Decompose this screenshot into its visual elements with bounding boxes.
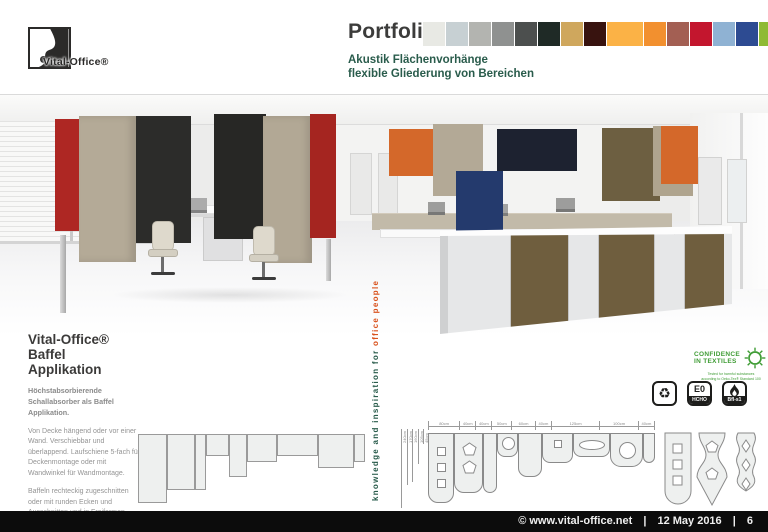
subtitle-line-1: Akustik Flächenvorhänge xyxy=(348,54,488,66)
square-cutout xyxy=(437,447,446,456)
baffle-taupe xyxy=(79,116,136,262)
color-swatch xyxy=(667,22,689,46)
e0-label: E0 xyxy=(689,383,710,395)
product-heading-line1: Vital-Office® xyxy=(28,332,109,347)
color-swatch xyxy=(492,22,514,46)
baffle-black xyxy=(214,114,266,239)
width-dimension-segment: 50cm xyxy=(491,421,511,430)
footer-page-number: 6 xyxy=(743,515,757,527)
brand-name: Vital-Office® xyxy=(43,56,109,68)
baffle-outline xyxy=(167,434,195,490)
width-dimension-segment: 100cm xyxy=(599,421,638,430)
baffle-shape xyxy=(643,433,655,463)
color-swatch xyxy=(469,22,491,46)
office-chair-base xyxy=(151,272,175,275)
width-dimension-segment: 40cm xyxy=(535,421,551,430)
color-swatch xyxy=(607,22,643,46)
baffle-shape xyxy=(518,433,542,477)
monitor xyxy=(428,202,445,215)
product-lead: Höchstabsorbierende Schallabsorber als B… xyxy=(28,386,142,418)
subtitle-line-2: flexible Gliederung von Bereichen xyxy=(348,68,534,80)
office-chair-seat xyxy=(249,254,279,262)
width-dimension-segment: 60cm xyxy=(511,421,535,430)
recycling-badge: ♻ xyxy=(652,381,677,406)
support-pole xyxy=(60,235,66,313)
circle-cutout xyxy=(619,442,636,459)
door-right xyxy=(727,159,747,223)
ellipse-cutout xyxy=(579,440,605,450)
oeko-sun-icon xyxy=(743,346,767,370)
color-swatch xyxy=(446,22,468,46)
portfolio-page: Vital-Office® Portfolio Akustik Flächenv… xyxy=(0,0,768,532)
vertical-tagline: knowledge and inspiration for office peo… xyxy=(371,265,385,501)
color-swatch xyxy=(561,22,583,46)
emission-badge: E0 HCHO xyxy=(687,381,712,406)
privacy-screen-row xyxy=(372,213,672,230)
baffle-outline xyxy=(229,434,247,477)
door-right xyxy=(698,157,722,225)
oeko-tex-label: CONFIDENCE IN TEXTILES Tested for harmfu… xyxy=(694,346,768,381)
office-chair-base xyxy=(252,277,276,280)
baffle-shape xyxy=(454,433,483,493)
baffle-outline xyxy=(195,434,206,490)
footer-bar: © www.vital-office.net | 12 May 2016 | 6 xyxy=(0,511,768,532)
product-info-block: Vital-Office® Baffel Applikation Höchsta… xyxy=(28,332,142,529)
oeko-title-line2: IN TEXTILES xyxy=(694,358,740,365)
baffle-shape xyxy=(428,433,454,503)
square-cutout xyxy=(437,463,446,472)
baffle-outline xyxy=(277,434,318,456)
color-swatch xyxy=(538,22,560,46)
color-swatch xyxy=(584,22,606,46)
tagline-accent: office people xyxy=(371,280,380,346)
product-paragraph-1: Von Decke hängend oder vor einer Wand. V… xyxy=(28,427,142,480)
color-swatch xyxy=(736,22,758,46)
circle-cutout xyxy=(502,437,515,450)
fire-class-label: Bfl-s1 xyxy=(724,396,745,404)
baffle-red xyxy=(310,114,336,238)
tagline-main: knowledge and inspiration for xyxy=(371,346,380,501)
color-swatch xyxy=(515,22,537,46)
office-chair-post xyxy=(262,262,265,277)
width-dimension-segment: 125cm xyxy=(551,421,599,430)
width-dimension-segment: 40cm xyxy=(638,421,655,430)
fire-rating-badge: Bfl-s1 xyxy=(722,381,747,406)
footer-separator: | xyxy=(639,515,650,527)
freeform-baffle-shapes xyxy=(662,432,762,508)
office-chair xyxy=(253,226,275,256)
pentagon-cutout xyxy=(463,443,476,455)
baffle-shape xyxy=(610,433,643,467)
baffle-navy xyxy=(456,171,503,236)
product-heading-line2: Baffel Applikation xyxy=(28,347,102,377)
baffle-dimension-drawing: 80cm40cm40cm50cm60cm40cm125cm100cm40cm 2… xyxy=(400,415,768,515)
color-swatch xyxy=(713,22,735,46)
office-chair-seat xyxy=(148,249,178,257)
fabric-color-strip xyxy=(423,22,768,46)
color-swatch xyxy=(423,22,445,46)
baffle-shape xyxy=(573,433,610,457)
baffle-outline xyxy=(247,434,277,462)
color-swatch xyxy=(690,22,712,46)
support-pole xyxy=(326,239,331,281)
width-dimension-segment: 40cm xyxy=(475,421,491,430)
footer-date: 12 May 2016 xyxy=(653,515,725,527)
color-swatch xyxy=(644,22,666,46)
baffle-overlap-diagram xyxy=(138,434,368,506)
product-heading: Vital-Office® Baffel Applikation xyxy=(28,332,142,377)
baffle-outline xyxy=(354,434,365,462)
monitor xyxy=(556,198,575,212)
footer-copyright-url[interactable]: © www.vital-office.net xyxy=(514,515,636,527)
floor-shadow xyxy=(110,287,350,303)
height-dimension-lines: 240cm170cm160cm105cm45cm xyxy=(401,429,429,513)
office-chair xyxy=(152,221,174,251)
square-cutout xyxy=(437,479,446,488)
baffle-shape xyxy=(497,433,518,457)
color-swatch xyxy=(759,22,768,46)
oeko-title-line1: CONFIDENCE xyxy=(694,351,740,358)
baffle-olive xyxy=(602,128,660,201)
pentagon-cutout xyxy=(463,461,476,473)
recycle-icon: ♻ xyxy=(654,383,675,404)
width-dimension-segment: 40cm xyxy=(459,421,475,430)
width-dimension-segment: 80cm xyxy=(428,421,459,430)
door-center xyxy=(350,153,372,215)
square-cutout xyxy=(554,440,562,448)
baffle-shape xyxy=(483,433,497,493)
baffle-outline xyxy=(318,434,354,468)
baffle-orange xyxy=(661,126,698,184)
hcho-label: HCHO xyxy=(689,396,710,404)
baffle-shape xyxy=(542,433,573,463)
baffle-red xyxy=(55,119,82,231)
baffle-outline xyxy=(206,434,229,456)
baffle-dark-navy xyxy=(497,129,577,171)
width-dimension-line: 80cm40cm40cm50cm60cm40cm125cm100cm40cm xyxy=(428,421,655,431)
footer-separator: | xyxy=(729,515,740,527)
office-chair-post xyxy=(161,257,164,272)
baffle-outline xyxy=(138,434,167,503)
